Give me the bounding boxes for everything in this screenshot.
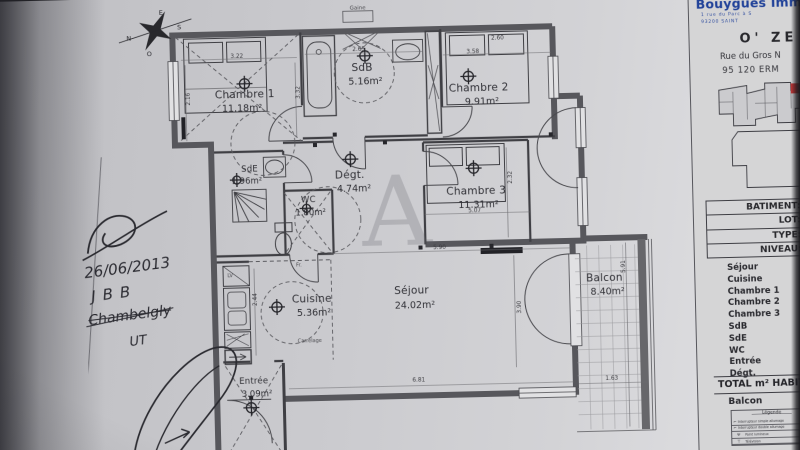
- legend-symbol: ⌐: [733, 419, 736, 423]
- room-label-degt: Dégt.: [335, 169, 365, 182]
- room-area-balcon: 8.40m²: [590, 286, 624, 298]
- legend-symbol: ⌐: [733, 426, 736, 430]
- project-street: Rue du Gros N: [720, 51, 781, 62]
- info-label-lot: LOT:: [707, 213, 800, 229]
- legend-symbol: Ψ: [735, 433, 742, 438]
- floorplan-photo: E S O N A Chambre 1 11.18m² SdB 5.16m² C…: [0, 0, 800, 450]
- legend-title: Légende: [752, 410, 792, 415]
- balcony-summary-row: Balcon: [728, 396, 762, 407]
- info-label-niveau: NIVEAU:: [708, 242, 800, 258]
- dim-3-90: 3.90: [515, 301, 522, 314]
- room-label-chambre2: Chambre 2: [449, 81, 509, 94]
- brand-address-1: 1 rue du Parc à S: [701, 11, 752, 17]
- room-area-sejour: 24.02m²: [395, 300, 436, 312]
- key-plan: [707, 78, 800, 197]
- handwritten-annotations: 26/06/2013 JBB Chambelgly UT: [75, 194, 267, 450]
- signature-swirl: [101, 334, 270, 450]
- room-label-sdb: SdB: [351, 62, 372, 75]
- legend-table: Légende ⌐ Interrupteur simple allumage ⌐…: [731, 408, 800, 446]
- total-habitable-row: TOTAL m² HABIT: [714, 373, 800, 395]
- handwritten-initials: JBB: [90, 282, 138, 306]
- legend-label: Interrupteur simple allumage: [738, 419, 784, 424]
- toilet-icon: [275, 223, 293, 255]
- room-area-chambre1: 11.18m²: [222, 103, 263, 115]
- room-label-wc: WC: [301, 195, 316, 205]
- info-label-type: TYPE:: [707, 228, 800, 244]
- info-row-niveau: NIVEAU:: [707, 241, 800, 259]
- carrelage-label: Carrelage: [298, 338, 322, 344]
- compass-s: S: [177, 23, 181, 31]
- dim-2-44: 2.44: [251, 293, 258, 306]
- brand-name: Bouygues Immobilier: [695, 0, 800, 12]
- paper-sheet: E S O N A Chambre 1 11.18m² SdB 5.16m² C…: [0, 0, 800, 450]
- room-area-sde: 1.96m²: [231, 176, 262, 187]
- watermark-letter: A: [361, 155, 433, 269]
- dim-3-58: 3.58: [466, 48, 479, 55]
- highlighted-unit: [791, 83, 800, 93]
- gaine-label: Gaine: [350, 5, 366, 11]
- dim-3-32: 3.32: [294, 86, 301, 99]
- shower-icon: [232, 189, 267, 222]
- room-area-wc: 1.80m²: [295, 208, 326, 219]
- dim-3-22: 3.22: [230, 52, 243, 59]
- room-label-balcon: Balcon: [586, 272, 623, 285]
- dim-2-32: 2.32: [506, 171, 513, 184]
- sheet-content: E S O N A Chambre 1 11.18m² SdB 5.16m² C…: [0, 0, 800, 450]
- dim-5-07: 5.07: [468, 207, 481, 214]
- dim-1-63: 1.63: [605, 374, 618, 381]
- dim-5-90: 5.90: [433, 244, 446, 251]
- legend-symbol: ⊤: [735, 439, 742, 444]
- dim-5-91: 5.91: [620, 260, 627, 273]
- handwritten-struck-word: Chambelgly: [87, 302, 172, 329]
- legend-row: ⊤ Télévision: [732, 437, 800, 446]
- room-label-sde: SdE: [241, 164, 258, 174]
- info-table: BATIMENT: LOT: TYPE: NIVEAU:: [705, 197, 800, 259]
- brand-address-2: 93200 SAINT: [701, 19, 739, 25]
- dim-2-60: 2.60: [491, 34, 504, 41]
- fr-label: Fr.: [296, 263, 302, 269]
- room-area-degt: 4.74m²: [337, 183, 371, 195]
- legend-label: Point lumineux: [745, 432, 775, 436]
- room-area-cuisine: 5.36m²: [297, 307, 331, 319]
- ceiling-light-symbols: [227, 45, 488, 416]
- project-city: 95 120 ERM: [722, 65, 779, 76]
- room-area-chambre2: 9.91m²: [465, 96, 499, 108]
- room-label-sejour: Séjour: [394, 284, 429, 297]
- info-label-batiment: BATIMENT:: [706, 199, 800, 215]
- title-block: Bouygues Immobilier 1 rue du Parc à S 93…: [687, 0, 800, 450]
- dim-2-16: 2.16: [184, 93, 191, 106]
- room-area-sdb: 5.16m²: [348, 76, 382, 88]
- compass-e: E: [159, 9, 163, 17]
- dim-6-81: 6.81: [412, 376, 425, 383]
- room-summary-list: Séjour Cuisine Chambre 1 Chambre 2 Chamb…: [727, 260, 800, 381]
- room-label-cuisine: Cuisine: [292, 293, 332, 306]
- dim-2-65: 2.65: [352, 45, 365, 52]
- balcony-door-leaf: [569, 254, 582, 346]
- room-label-chambre1: Chambre 1: [215, 88, 275, 101]
- compass-n: N: [126, 35, 131, 43]
- room-label-chambre3: Chambre 3: [446, 184, 506, 197]
- legend-label: Télévision: [745, 439, 775, 443]
- project-name: O' ZE: [739, 30, 797, 46]
- compass-o: O: [147, 50, 152, 58]
- bathtub-icon: [302, 36, 336, 117]
- legend-label: Interrupteur double allumage: [738, 425, 785, 430]
